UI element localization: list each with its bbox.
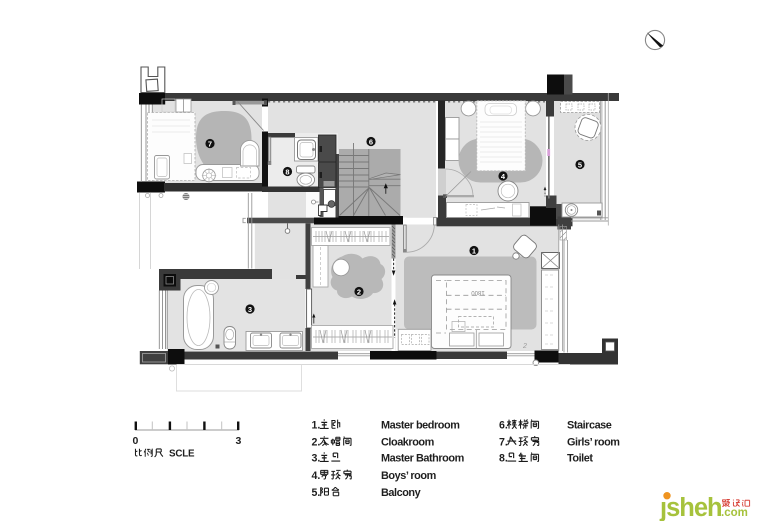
- svg-text:1: 1: [472, 246, 476, 255]
- svg-text:5: 5: [578, 160, 582, 169]
- svg-text:2: 2: [522, 343, 527, 350]
- svg-text:1.: 1.: [312, 420, 321, 432]
- svg-text:Master bedroom: Master bedroom: [381, 420, 460, 432]
- svg-text:3: 3: [248, 305, 252, 314]
- svg-text:.com: .com: [721, 507, 748, 519]
- svg-text:8: 8: [285, 167, 289, 176]
- svg-text:2.: 2.: [312, 437, 321, 449]
- svg-text:7.: 7.: [499, 437, 508, 449]
- svg-text:6: 6: [369, 137, 373, 146]
- svg-text:3: 3: [236, 435, 242, 447]
- svg-text:3.: 3.: [312, 453, 321, 465]
- svg-text:1800: 1800: [471, 289, 485, 295]
- svg-text:0: 0: [133, 435, 139, 447]
- svg-text:7: 7: [208, 139, 212, 148]
- svg-text:4.: 4.: [312, 470, 321, 482]
- svg-text:5.: 5.: [312, 487, 321, 499]
- svg-text:Staircase: Staircase: [567, 420, 612, 432]
- svg-text:Master Bathroom: Master Bathroom: [381, 453, 465, 465]
- svg-text:Cloakroom: Cloakroom: [381, 437, 435, 449]
- svg-text:6.: 6.: [499, 420, 508, 432]
- svg-text:Boys’ room: Boys’ room: [381, 470, 437, 482]
- svg-text:Girls’ room: Girls’ room: [567, 437, 620, 449]
- svg-text:2: 2: [357, 287, 361, 296]
- svg-text:SCLE: SCLE: [169, 449, 195, 460]
- svg-text:Toilet: Toilet: [567, 453, 593, 465]
- svg-text:8.: 8.: [499, 453, 508, 465]
- svg-text:Balcony: Balcony: [381, 487, 421, 499]
